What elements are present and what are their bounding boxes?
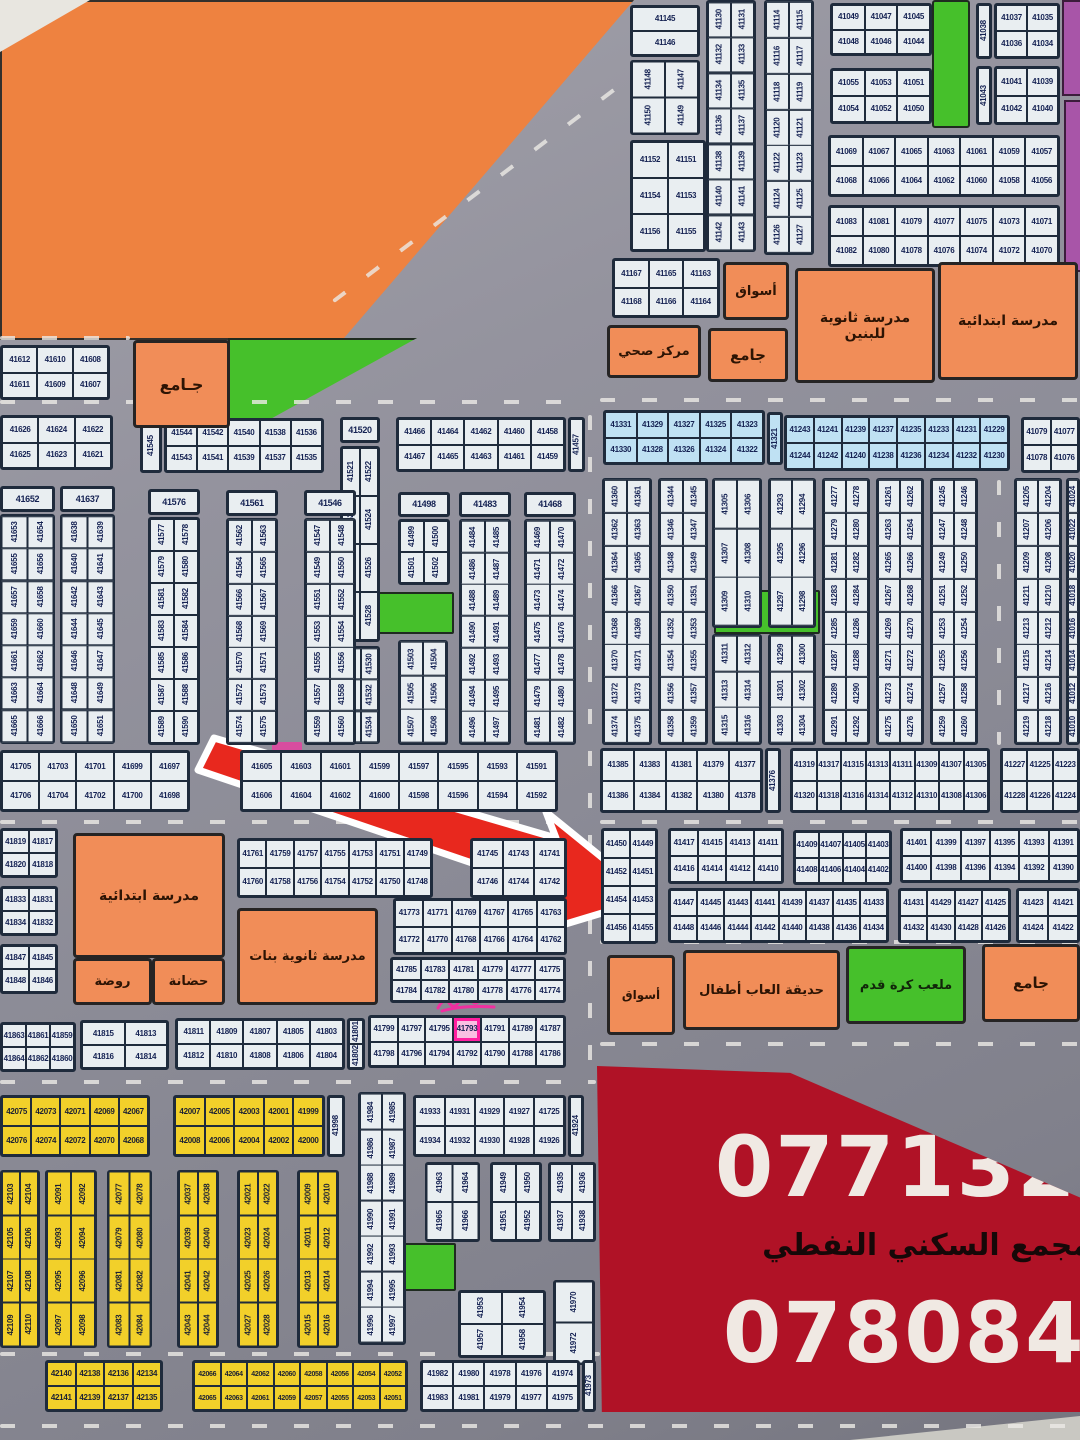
plot-cell: 41357 xyxy=(683,677,706,710)
plot-cell: 41275 xyxy=(878,710,900,743)
plot-cell: 41299 xyxy=(770,636,792,672)
plot-cell: 41530 xyxy=(361,648,378,679)
plot-cell: 41504 xyxy=(423,642,446,676)
plot-cell: 41217 xyxy=(1016,677,1038,710)
strip-41277: 4127741278412794128041281412824128341284… xyxy=(822,478,870,745)
plot-cell: 41957 xyxy=(460,1324,502,1356)
hdr-41520: 41520 xyxy=(340,417,380,443)
plot-cell: 42013 xyxy=(299,1259,318,1303)
plot-cell: 41151 xyxy=(668,142,704,178)
plot-cell: 41964 xyxy=(453,1164,479,1202)
plot-cell: 41164 xyxy=(683,288,718,316)
plot-cell: 41572 xyxy=(228,679,252,711)
plot-cell: 41079 xyxy=(895,207,928,236)
plot-cell: 42134 xyxy=(133,1362,162,1386)
plot-cell: 42058 xyxy=(300,1362,327,1386)
plot-cell: 41534 xyxy=(361,711,378,742)
plot-cell: 41597 xyxy=(399,752,438,781)
plot-cell: 41119 xyxy=(789,74,812,110)
plot-cell: 41238 xyxy=(869,443,897,469)
plot-cell: 41492 xyxy=(461,648,485,680)
plot-cell: 41064 xyxy=(895,166,928,195)
plot-cell: 42022 xyxy=(258,1172,277,1216)
plot-cell: 41310 xyxy=(737,577,760,626)
plot-cell: 41975 xyxy=(547,1386,578,1410)
plot-cell: 41314 xyxy=(737,672,760,708)
blk-41305b: 4131941317413154131341311413094130741305… xyxy=(790,748,990,813)
plot-cell: 42082 xyxy=(130,1259,151,1303)
plot-cell: 41367 xyxy=(627,579,650,612)
plot-cell: 41076 xyxy=(1051,445,1079,471)
plot-cell: 41372 xyxy=(604,677,627,710)
plot-cell: 41058 xyxy=(993,166,1026,195)
plot-cell: 41834 xyxy=(2,911,29,934)
plot-cell: 41706 xyxy=(2,781,39,810)
plot-cell: 41698 xyxy=(151,781,188,810)
strip-41503: 415034150441505415064150741508 xyxy=(398,640,448,745)
plot-cell: 41116 xyxy=(766,38,789,74)
plot-cell: 41927 xyxy=(504,1097,534,1126)
plot-cell: 42098 xyxy=(71,1303,95,1347)
plot-cell: 41437 xyxy=(806,890,833,916)
plot-cell: 42044 xyxy=(198,1303,217,1347)
plot-cell: 41428 xyxy=(955,916,982,942)
plot-cell: 41577 xyxy=(150,519,174,551)
plot-cell: 41304 xyxy=(792,707,814,743)
plot-cell: 41477 xyxy=(526,648,550,680)
plot-cell: 41495 xyxy=(485,680,509,712)
plot-cell: 41505 xyxy=(400,676,423,710)
plot-cell: 41271 xyxy=(878,644,900,677)
plot-cell: 41970 xyxy=(555,1282,593,1323)
plot-cell: 41361 xyxy=(627,480,650,513)
plot-cell: 42084 xyxy=(130,1303,151,1347)
residential-complex-name: المجمع السكني النفطي xyxy=(762,1228,1080,1263)
plot-cell: 41076 xyxy=(928,236,961,265)
plot-cell: 41037 xyxy=(996,5,1027,31)
plot-cell: 42009 xyxy=(299,1172,318,1216)
plot-cell: 41273 xyxy=(878,677,900,710)
plot-cell: 41819 xyxy=(2,830,29,853)
strip-41204: 4120541204412074120641209412084121141210… xyxy=(1014,478,1062,745)
plot-cell: 41522 xyxy=(360,448,378,496)
plot-cell: 41990 xyxy=(360,1201,382,1237)
hdr-41483: 41483 xyxy=(459,492,511,517)
plot-cell: 41507 xyxy=(400,709,423,743)
plot-cell: 41767 xyxy=(480,900,508,927)
plot-cell: 41494 xyxy=(461,680,485,712)
strip-42103: 4210342104421054210642107421084210942110 xyxy=(0,1170,40,1348)
plot-cell: 41240 xyxy=(842,443,870,469)
plot-cell: 41137 xyxy=(731,108,754,143)
plot-cell: 41224 xyxy=(1053,781,1078,812)
plot-cell: 41666 xyxy=(28,710,54,742)
plot-cell: 41491 xyxy=(485,616,509,648)
plot-cell: 41459 xyxy=(531,445,564,471)
plot-cell: 41809 xyxy=(210,1020,243,1044)
plot-cell: 41958 xyxy=(502,1324,544,1356)
plot-cell: 41048 xyxy=(832,30,865,55)
plot-cell: 41612 xyxy=(2,347,37,373)
strip-41653: 4165341654416554165641657416584165941660… xyxy=(0,514,55,744)
plot-cell: 41789 xyxy=(509,1017,537,1042)
plot-cell: 42001 xyxy=(264,1097,294,1126)
plot-cell: 41609 xyxy=(37,373,72,399)
plot-cell: 41556 xyxy=(330,647,354,679)
plot-cell: 42064 xyxy=(221,1362,248,1386)
strip-42077: 4207742078420794208042081420824208342084 xyxy=(107,1170,152,1348)
plot-cell: 41550 xyxy=(330,552,354,584)
plot-cell: 41658 xyxy=(28,581,54,613)
strip-41949: 41949419504195141952 xyxy=(490,1162,542,1242)
blk-41391: 4140141399413974139541393413914140041398… xyxy=(900,828,1080,883)
plot-cell: 41402 xyxy=(866,858,890,884)
plot-cell: 41225 xyxy=(1027,750,1052,781)
plot-cell: 41152 xyxy=(632,142,668,178)
plot-cell: 41120 xyxy=(766,110,789,146)
plot-cell: 42061 xyxy=(247,1386,274,1410)
plot-cell: 41212 xyxy=(1038,612,1060,645)
plot-cell: 41130 xyxy=(708,2,731,37)
plot-cell: 41057 xyxy=(1025,137,1058,166)
plot-cell: 41153 xyxy=(668,178,704,214)
plot-cell: 41639 xyxy=(88,516,114,548)
street-dashes xyxy=(600,398,1080,402)
plot-cell: 41044 xyxy=(897,30,930,55)
plot-cell: 41568 xyxy=(228,616,252,648)
plot-cell: 42093 xyxy=(47,1216,71,1260)
plot-cell: 41493 xyxy=(485,648,509,680)
plot-cell: 41280 xyxy=(846,513,868,546)
plot-cell: 42063 xyxy=(221,1386,248,1410)
plot-cell: 41659 xyxy=(2,613,28,645)
plot-cell: 41042 xyxy=(996,96,1027,124)
plot-cell: 42002 xyxy=(264,1126,294,1155)
plot-cell: 41607 xyxy=(73,373,108,399)
strip-41360: 4136041361413624136341364413654136641367… xyxy=(602,478,652,745)
plot-cell: 41249 xyxy=(932,546,954,579)
plot-cell: 41810 xyxy=(210,1044,243,1068)
plot-cell: 41364 xyxy=(604,546,627,579)
plot-cell: 41995 xyxy=(382,1272,404,1308)
plot-cell: 41798 xyxy=(370,1042,398,1067)
strip-41963: 41963419644196541966 xyxy=(425,1162,480,1242)
plot-cell: 41538 xyxy=(260,420,291,446)
blk-41813: 41815418134181641814 xyxy=(80,1020,169,1070)
strip-41547: 4154741548415494155041551415524155341554… xyxy=(304,518,356,745)
plot-cell: 41982 xyxy=(422,1362,453,1386)
plot-cell: 41317 xyxy=(817,750,842,781)
plot-cell: 42080 xyxy=(130,1216,151,1260)
plot-cell: 41775 xyxy=(535,959,564,980)
plot-cell: 41413 xyxy=(726,830,754,856)
plot-cell: 41248 xyxy=(954,513,976,546)
plot-cell: 41999 xyxy=(293,1097,323,1126)
plot-cell: 42095 xyxy=(47,1259,71,1303)
plot-cell: 41566 xyxy=(228,584,252,616)
strip-41299: 412994130041301413024130341304 xyxy=(768,634,816,745)
blk-42067: 4207542073420714206942067420764207442072… xyxy=(0,1095,150,1157)
plot-cell: 42137 xyxy=(104,1386,133,1410)
mosque-mid: جامع xyxy=(708,328,788,382)
blk-41803: 4181141809418074180541803418124181041808… xyxy=(175,1018,345,1070)
strip-41321: 41321 xyxy=(767,412,783,465)
plot-cell: 41167 xyxy=(614,260,649,288)
plot-cell: 42069 xyxy=(90,1097,119,1126)
plot-cell: 41965 xyxy=(427,1202,453,1240)
plot-cell: 41665 xyxy=(2,710,28,742)
plot-cell: 41743 xyxy=(503,840,534,868)
plot-cell: 41141 xyxy=(731,179,754,214)
plot-cell: 41353 xyxy=(683,612,706,645)
plot-cell: 41462 xyxy=(464,419,497,445)
plot-cell: 41663 xyxy=(2,677,28,709)
plot-cell: 41752 xyxy=(349,868,376,896)
plot-cell: 41300 xyxy=(792,636,814,672)
plot-cell: 41308 xyxy=(939,781,964,812)
kids-park: حديقة العاب أطفال xyxy=(683,950,840,1030)
plot-cell: 41122 xyxy=(766,145,789,181)
plot-cell: 41626 xyxy=(2,417,38,443)
plot-cell: 41625 xyxy=(2,443,38,469)
plot-cell: 41820 xyxy=(2,853,29,876)
plot-cell: 41540 xyxy=(228,420,259,446)
plot-cell: 41432 xyxy=(900,916,927,942)
plot-cell: 41587 xyxy=(150,679,174,711)
blk-41622: 416264162441622416254162341621 xyxy=(0,415,113,470)
plot-cell: 41121 xyxy=(789,110,812,146)
plot-cell: 41745 xyxy=(472,840,503,868)
strip-41469: 4146941470414714147241473414744147541476… xyxy=(524,519,576,745)
blk-41076: 41079410774107841076 xyxy=(1021,417,1080,473)
plot-cell: 41307 xyxy=(714,529,737,578)
plot-cell: 42026 xyxy=(258,1259,277,1303)
plot-cell: 41277 xyxy=(824,480,846,513)
plot-cell: 41464 xyxy=(431,419,464,445)
phone-number-top: 0771323 xyxy=(715,1118,1080,1216)
plot-cell: 41219 xyxy=(1016,710,1038,743)
plot-cell: 41390 xyxy=(1049,856,1078,882)
plot-cell: 41788 xyxy=(509,1042,537,1067)
plot-cell: 41541 xyxy=(197,446,228,472)
plot-cell: 41430 xyxy=(927,916,954,942)
plot-cell: 41476 xyxy=(550,616,574,648)
plot-cell: 41231 xyxy=(953,417,981,443)
plot-cell: 41590 xyxy=(174,711,198,743)
plot-cell: 41369 xyxy=(627,612,650,645)
plot-cell: 41950 xyxy=(516,1164,540,1202)
blk-41608: 416124161041608416114160941607 xyxy=(0,345,110,400)
plot-cell: 42053 xyxy=(353,1386,380,1410)
plot-cell: 42068 xyxy=(119,1126,148,1155)
plot-cell: 42109 xyxy=(2,1303,20,1347)
blk-41151: 411524115141154411534115641155 xyxy=(630,140,706,252)
plot-cell: 41760 xyxy=(239,868,266,896)
ad-banner: 0771323 المجمع السكني النفطي 0780843 xyxy=(597,1066,1080,1412)
plot-cell: 41416 xyxy=(670,856,698,882)
plot-cell: 41223 xyxy=(1053,750,1078,781)
plot-cell: 41498 xyxy=(400,494,448,515)
plot-cell: 41588 xyxy=(174,679,198,711)
plot-cell: 41146 xyxy=(632,31,698,55)
plot-cell: 41570 xyxy=(228,647,252,679)
plot-cell: 41439 xyxy=(779,890,806,916)
plot-cell: 41937 xyxy=(550,1202,572,1240)
blk-42051: 4206642064420624206042058420564205442052… xyxy=(192,1360,408,1412)
plot-cell: 41124 xyxy=(766,181,789,217)
strip-41376: 41376 xyxy=(765,748,781,813)
plot-cell: 41132 xyxy=(708,37,731,72)
plot-cell: 41312 xyxy=(890,781,915,812)
plot-cell: 41256 xyxy=(954,644,976,677)
plot-cell: 41285 xyxy=(824,612,846,645)
plot-cell: 41979 xyxy=(484,1386,515,1410)
plot-cell: 41262 xyxy=(900,480,922,513)
plot-cell: 41362 xyxy=(604,513,627,546)
plot-cell: 41014 xyxy=(1068,644,1078,677)
plot-cell: 41624 xyxy=(38,417,74,443)
plot-cell: 42065 xyxy=(194,1386,221,1410)
plot-cell: 41245 xyxy=(932,480,954,513)
plot-cell: 41075 xyxy=(960,207,993,236)
plot-cell: 41647 xyxy=(88,645,114,677)
plot-cell: 41311 xyxy=(890,750,915,781)
plot-cell: 41296 xyxy=(792,529,814,578)
plot-cell: 41604 xyxy=(281,781,320,810)
plot-cell: 41066 xyxy=(863,166,896,195)
health-center: مركز صحي xyxy=(607,325,701,378)
plot-cell: 41952 xyxy=(516,1202,540,1240)
plot-cell: 41763 xyxy=(537,900,565,927)
plot-cell: 41274 xyxy=(900,677,922,710)
blk-41323: 4133141329413274132541323413304132841326… xyxy=(603,410,765,465)
plot-cell: 41163 xyxy=(683,260,718,288)
plot-cell: 41648 xyxy=(62,677,88,709)
plot-cell: 42136 xyxy=(104,1362,133,1386)
plot-cell: 41642 xyxy=(62,581,88,613)
plot-cell: 41218 xyxy=(1038,710,1060,743)
plot-cell: 41281 xyxy=(824,546,846,579)
plot-cell: 41305 xyxy=(964,750,989,781)
plot-cell: 41311 xyxy=(714,636,737,672)
plot-cell: 41985 xyxy=(382,1094,404,1130)
plot-cell: 42108 xyxy=(20,1259,38,1303)
plot-cell: 42052 xyxy=(380,1362,407,1386)
highlighted-plot-cell: 41793 xyxy=(453,1017,481,1042)
plot-cell: 41595 xyxy=(438,752,477,781)
plot-cell: 41204 xyxy=(1038,480,1060,513)
plot-cell: 41279 xyxy=(824,513,846,546)
plot-cell: 42107 xyxy=(2,1259,20,1303)
plot-cell: 41784 xyxy=(392,980,421,1001)
strip-41984: 4198441985419864198741988419894199041991… xyxy=(358,1092,406,1345)
kindergarten: روضة xyxy=(73,958,152,1005)
blk-41999: 4200742005420034200141999420084200642004… xyxy=(173,1095,325,1157)
plot-cell: 41463 xyxy=(464,445,497,471)
plot-cell: 41933 xyxy=(415,1097,445,1126)
plot-cell: 42135 xyxy=(133,1386,162,1410)
plot-cell: 41446 xyxy=(697,916,724,942)
plot-cell: 41560 xyxy=(330,711,354,743)
plot-cell: 41764 xyxy=(508,927,536,954)
plot-cell: 41038 xyxy=(978,5,990,57)
plot-cell: 41406 xyxy=(819,858,843,884)
plot-cell: 41805 xyxy=(277,1020,310,1044)
plot-cell: 41061 xyxy=(960,137,993,166)
plot-cell: 41316 xyxy=(841,781,866,812)
plot-cell: 42011 xyxy=(299,1216,318,1260)
plot-cell: 41582 xyxy=(174,583,198,615)
strip-41043: 41043 xyxy=(976,66,992,125)
plot-cell: 41966 xyxy=(453,1202,479,1240)
blk-41741: 417454174341741417464174441742 xyxy=(470,838,567,898)
plot-cell: 41579 xyxy=(150,551,174,583)
plot-cell: 41499 xyxy=(400,521,424,552)
hdr-41561: 41561 xyxy=(226,490,278,516)
plot-cell: 41537 xyxy=(260,446,291,472)
plot-cell: 41255 xyxy=(932,644,954,677)
plot-cell: 41792 xyxy=(453,1042,481,1067)
plot-cell: 41404 xyxy=(843,858,867,884)
plot-cell: 41661 xyxy=(2,645,28,677)
plot-cell: 41376 xyxy=(767,750,779,811)
plot-cell: 41451 xyxy=(630,858,657,886)
plot-cell: 41455 xyxy=(630,914,657,942)
plot-cell: 42076 xyxy=(2,1126,31,1155)
plot-cell: 41206 xyxy=(1038,513,1060,546)
plot-cell: 41546 xyxy=(306,492,354,514)
blk-41925: 4193341931419294192741725419344193241930… xyxy=(413,1095,566,1157)
plot-cell: 41461 xyxy=(498,445,531,471)
plot-cell: 41479 xyxy=(526,680,550,712)
mosque-bottom-right: جامع xyxy=(982,944,1080,1022)
plot-cell: 41138 xyxy=(708,144,731,179)
plot-cell: 41053 xyxy=(865,70,898,96)
strip-41935: 41935419364193741938 xyxy=(548,1162,596,1242)
plot-cell: 41565 xyxy=(252,552,276,584)
plot-cell: 41610 xyxy=(37,347,72,373)
strip-41344: 4134441345413464134741348413494135041351… xyxy=(658,478,708,745)
plot-cell: 41263 xyxy=(878,513,900,546)
plot-cell: 42006 xyxy=(205,1126,235,1155)
plot-cell: 41268 xyxy=(900,579,922,612)
plot-cell: 41117 xyxy=(789,38,812,74)
plot-cell: 41973 xyxy=(584,1362,594,1410)
plot-cell: 41368 xyxy=(604,612,627,645)
plot-cell: 41932 xyxy=(445,1126,475,1155)
plot-cell: 41324 xyxy=(700,438,732,464)
plot-cell: 41308 xyxy=(737,529,760,578)
plot-cell: 41994 xyxy=(360,1272,382,1308)
blk-41223: 412274122541223412284122641224 xyxy=(1000,748,1080,813)
plot-cell: 41861 xyxy=(26,1024,50,1047)
strip-41924: 41924 xyxy=(568,1095,584,1157)
plot-cell: 41321 xyxy=(769,414,781,463)
plot-cell: 41062 xyxy=(928,166,961,195)
plot-cell: 41578 xyxy=(174,519,198,551)
plot-cell: 41554 xyxy=(330,616,354,648)
plot-cell: 41346 xyxy=(660,513,683,546)
plot-cell: 41427 xyxy=(955,890,982,916)
plot-cell: 41862 xyxy=(26,1047,50,1070)
plot-cell: 41704 xyxy=(39,781,76,810)
plot-cell: 41306 xyxy=(964,781,989,812)
strip-41998: 41998 xyxy=(327,1095,345,1157)
street-dashes xyxy=(0,400,585,404)
plot-cell: 41573 xyxy=(252,679,276,711)
plot-cell: 41930 xyxy=(475,1126,505,1155)
plot-cell: 41349 xyxy=(683,546,706,579)
